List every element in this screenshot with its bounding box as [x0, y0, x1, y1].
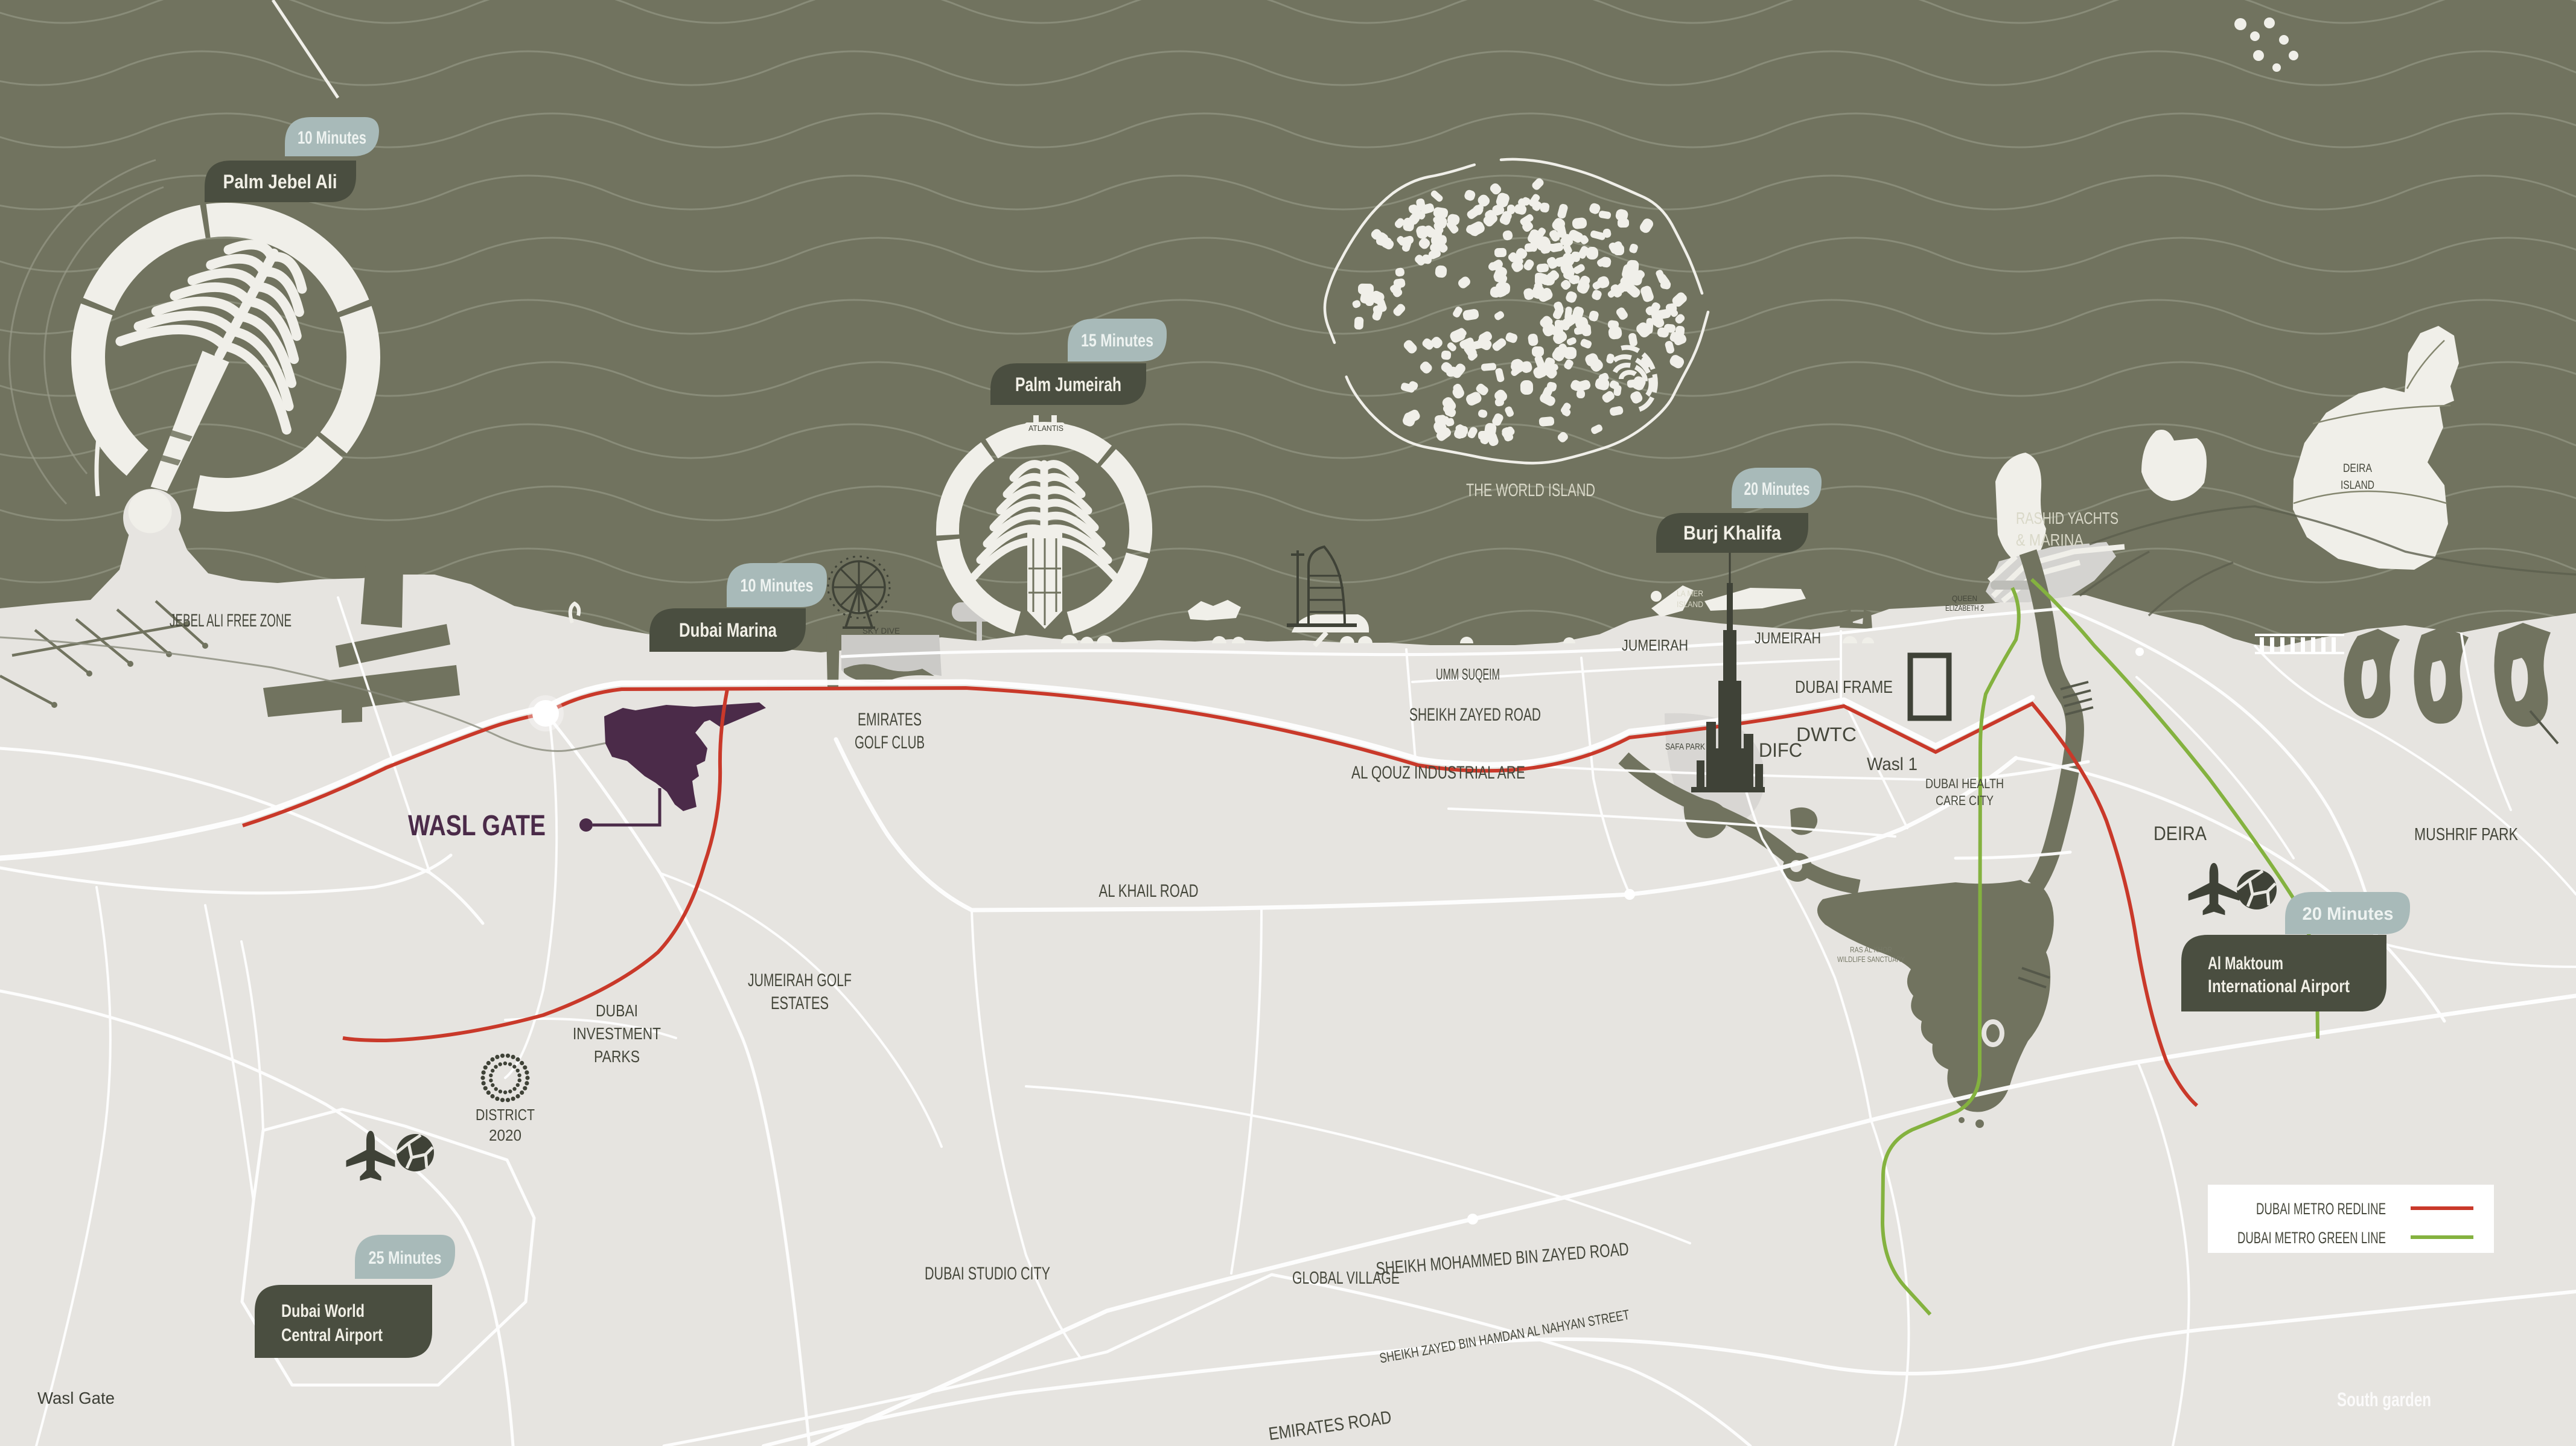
svg-text:20 Minutes: 20 Minutes: [2303, 904, 2394, 924]
svg-text:ELIZABETH 2: ELIZABETH 2: [1945, 604, 1984, 613]
svg-text:DUBAI HEALTH: DUBAI HEALTH: [1925, 776, 2004, 791]
svg-text:JUMEIRAH: JUMEIRAH: [1755, 629, 1821, 647]
svg-text:Dubai World: Dubai World: [281, 1301, 365, 1321]
svg-text:EMIRATES: EMIRATES: [858, 710, 922, 730]
svg-text:AL KHAIL ROAD: AL KHAIL ROAD: [1099, 881, 1199, 901]
svg-text:GOLF CLUB: GOLF CLUB: [855, 733, 925, 753]
svg-text:PARKS: PARKS: [594, 1047, 640, 1066]
svg-text:INVESTMENT: INVESTMENT: [573, 1024, 661, 1043]
svg-text:Wasl Gate: Wasl Gate: [37, 1389, 115, 1407]
svg-text:ESTATES: ESTATES: [771, 993, 829, 1013]
svg-text:AL QOUZ INDUSTRIAL ARE: AL QOUZ INDUSTRIAL ARE: [1351, 763, 1525, 783]
svg-text:LA MER: LA MER: [1677, 588, 1703, 598]
svg-text:& MARINA: & MARINA: [2016, 530, 2083, 549]
svg-text:WASL GATE: WASL GATE: [408, 810, 546, 842]
svg-text:GLOBAL VILLAGE: GLOBAL VILLAGE: [1292, 1269, 1400, 1288]
svg-text:UMM SUQEIM: UMM SUQEIM: [1436, 665, 1500, 683]
svg-text:20 Minutes: 20 Minutes: [1744, 479, 1810, 499]
svg-text:DWTC: DWTC: [1796, 724, 1857, 745]
svg-text:Wasl 1: Wasl 1: [1867, 754, 1918, 774]
svg-text:10 Minutes: 10 Minutes: [298, 128, 366, 148]
svg-text:25 Minutes: 25 Minutes: [369, 1248, 442, 1268]
svg-text:DEIRA: DEIRA: [2343, 462, 2372, 475]
svg-text:15 Minutes: 15 Minutes: [1081, 331, 1153, 351]
svg-text:RAS AL KHOR: RAS AL KHOR: [1850, 945, 1892, 954]
svg-text:WILDLIFE SANCTUARY: WILDLIFE SANCTUARY: [1837, 955, 1905, 964]
svg-text:Palm Jumeirah: Palm Jumeirah: [1015, 374, 1121, 395]
svg-text:SHEIKH ZAYED ROAD: SHEIKH ZAYED ROAD: [1409, 705, 1541, 725]
svg-text:DUBAI: DUBAI: [596, 1001, 638, 1020]
svg-text:2020: 2020: [489, 1126, 521, 1144]
svg-text:JUMEIRAH GOLF: JUMEIRAH GOLF: [748, 970, 852, 990]
svg-text:Dubai Marina: Dubai Marina: [679, 619, 777, 641]
svg-text:CARE CITY: CARE CITY: [1936, 793, 1994, 808]
svg-text:SAFA PARK: SAFA PARK: [1665, 742, 1705, 752]
svg-text:RASHID YACHTS: RASHID YACHTS: [2016, 509, 2119, 527]
svg-text:Palm Jebel Ali: Palm Jebel Ali: [223, 171, 337, 193]
svg-text:DIFC: DIFC: [1759, 739, 1802, 761]
svg-text:JEBEL ALI FREE ZONE: JEBEL ALI FREE ZONE: [170, 611, 292, 631]
svg-text:JUMEIRAH: JUMEIRAH: [1622, 636, 1688, 654]
svg-text:South garden: South garden: [2337, 1389, 2431, 1410]
svg-text:Burj Khalifa: Burj Khalifa: [1683, 522, 1781, 544]
svg-text:DISTRICT: DISTRICT: [476, 1106, 535, 1124]
svg-text:International Airport: International Airport: [2208, 976, 2350, 996]
svg-text:DUBAI FRAME: DUBAI FRAME: [1795, 678, 1893, 697]
svg-text:DUBAI STUDIO CITY: DUBAI STUDIO CITY: [925, 1264, 1050, 1284]
svg-text:DEIRA: DEIRA: [2154, 823, 2207, 844]
svg-text:QUEEN: QUEEN: [1952, 594, 1977, 603]
svg-text:ISLAND: ISLAND: [1677, 599, 1703, 609]
svg-text:Central Airport: Central Airport: [281, 1325, 383, 1345]
svg-text:THE WORLD ISLAND: THE WORLD ISLAND: [1466, 480, 1595, 500]
svg-text:DUBAI METRO GREEN LINE: DUBAI METRO GREEN LINE: [2237, 1229, 2386, 1247]
svg-text:10 Minutes: 10 Minutes: [741, 576, 814, 596]
svg-text:ISLAND: ISLAND: [2341, 479, 2374, 492]
svg-text:Al Maktoum: Al Maktoum: [2208, 954, 2283, 973]
svg-text:DUBAI METRO REDLINE: DUBAI METRO REDLINE: [2256, 1200, 2386, 1218]
svg-text:MUSHRIF PARK: MUSHRIF PARK: [2414, 825, 2519, 844]
svg-text:SKY DIVE: SKY DIVE: [862, 626, 900, 635]
svg-text:ATLANTIS: ATLANTIS: [1028, 424, 1063, 433]
